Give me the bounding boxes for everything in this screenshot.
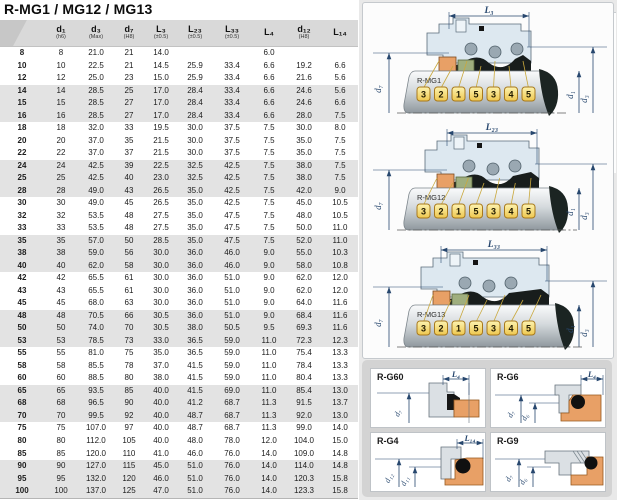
- part-number-plate: 2: [435, 87, 448, 101]
- part-number-plate: 5: [522, 204, 535, 218]
- svg-text:d₇: d₇: [373, 202, 383, 210]
- table-row: 161628.52717.028.433.46.628.07.5: [0, 110, 358, 123]
- svg-text:1: 1: [456, 90, 461, 100]
- detail-diagram-label: R-G60: [377, 372, 404, 382]
- table-header: d₁(h6) d₃(Max) d₇(H8) L₃(±0.5) L₂₃(±0.5)…: [0, 20, 358, 47]
- svg-text:2: 2: [438, 90, 443, 100]
- spring: [489, 46, 501, 58]
- column-header: d₃(Max): [78, 25, 114, 41]
- table-row: 101022.52114.525.933.46.619.26.6: [0, 60, 358, 73]
- svg-text:d₇: d₇: [373, 85, 383, 93]
- seat-ring: [456, 177, 472, 188]
- part-number-plate: 5: [522, 321, 535, 335]
- table-row: 606088.58038.041.559.011.080.413.3: [0, 372, 358, 385]
- svg-text:4: 4: [508, 90, 513, 100]
- column-header: L₂₃(±0.5): [178, 25, 212, 41]
- part-number-plate: 5: [470, 321, 483, 335]
- part-number-plate: 5: [522, 87, 535, 101]
- detail-diagram-label: R-G4: [377, 436, 399, 446]
- table-row: 535378.57333.036.559.011.072.312.3: [0, 335, 358, 348]
- detail-diagram-r-g9: R-G9 d₇ d₆: [490, 432, 606, 492]
- table-row: 8821.02114.06.0: [0, 47, 358, 60]
- part-number-plate: 3: [487, 204, 500, 218]
- part-number-plate: 1: [452, 321, 465, 335]
- table-body: 8821.02114.06.0101022.52114.525.933.46.6…: [0, 47, 358, 499]
- svg-text:2: 2: [438, 324, 443, 334]
- detail-diagram-label: R-G9: [497, 436, 519, 446]
- svg-text:d₇: d₇: [373, 319, 383, 327]
- svg-text:4: 4: [508, 324, 513, 334]
- table-row: 505074.07030.538.050.59.569.311.6: [0, 322, 358, 335]
- table-row: 404062.05830.036.046.09.058.010.8: [0, 260, 358, 273]
- length-dim-label: L₄: [451, 369, 460, 379]
- elastomer: [454, 400, 479, 417]
- svg-text:5: 5: [526, 90, 531, 100]
- svg-text:3: 3: [491, 324, 496, 334]
- page-title: R-MG1 / MG12 / MG13: [4, 1, 153, 17]
- svg-text:2: 2: [438, 207, 443, 217]
- spring: [463, 160, 475, 172]
- column-header: d₁₂(H8): [286, 25, 322, 41]
- diameter-dim-label: d₇: [505, 409, 516, 419]
- table-row: 707099.59240.048.768.711.392.013.0: [0, 410, 358, 423]
- table-row: 454568.06330.036.051.09.064.011.6: [0, 297, 358, 310]
- spring: [509, 160, 521, 172]
- table-row: 141428.52517.028.433.46.624.65.6: [0, 85, 358, 98]
- diameter-dim-label: d₇: [503, 473, 514, 483]
- column-header: L₃(±0.5): [144, 25, 178, 41]
- table-row: 656593.58540.041.569.011.085.413.0: [0, 385, 358, 398]
- diagram-label: R-MG13: [417, 310, 445, 319]
- diagram-label: R-MG12: [417, 193, 445, 202]
- column-header: [0, 20, 44, 46]
- detail-diagram-r-g60: R-G60 d₇ L₄: [370, 368, 486, 428]
- seal-diagram-r-mg13: R-MG13 3 2 1 5 3 4 5 L₃₃ d₇ d₁ d₃: [363, 237, 611, 354]
- svg-text:5: 5: [473, 207, 478, 217]
- part-number-plate: 4: [505, 204, 518, 218]
- svg-text:5: 5: [473, 90, 478, 100]
- svg-text:4: 4: [508, 207, 513, 217]
- table-row: 100100137.012547.051.076.014.0123.315.8: [0, 485, 358, 498]
- diameter-dim-label: d₁₂: [383, 472, 395, 485]
- diagram-label: R-MG1: [417, 76, 441, 85]
- column-header: L₃₃(±0.5): [212, 25, 252, 41]
- spring: [459, 277, 471, 289]
- part-number-plate: 2: [435, 321, 448, 335]
- table-row: 8585120.011041.046.076.014.0109.014.8: [0, 448, 358, 461]
- table-row: 555581.07535.036.559.011.075.413.3: [0, 347, 358, 360]
- seal-diagram-r-mg1: R-MG1 3 2 1 5 3 4 5 L₃ d₇ d₁ d₃: [363, 3, 611, 120]
- dimension-table: d₁(h6) d₃(Max) d₇(H8) L₃(±0.5) L₂₃(±0.5)…: [0, 20, 358, 499]
- diameter-dim-label: d₇: [392, 408, 403, 418]
- svg-text:3: 3: [491, 90, 496, 100]
- o-ring: [585, 457, 598, 470]
- table-row: 7575107.09740.048.768.711.399.014.0: [0, 422, 358, 435]
- svg-text:d₁: d₁: [565, 325, 575, 333]
- detail-diagram-label: R-G6: [497, 372, 519, 382]
- detail-diagram-r-g4: R-G4 d₁₂ d₁₁ L₁₄: [370, 432, 486, 492]
- seal-housing: [425, 135, 539, 180]
- seat: [545, 451, 589, 475]
- seal-housing: [427, 18, 531, 63]
- svg-text:3: 3: [421, 207, 426, 217]
- detail-diagram-r-g6: R-G6 d₇ d₆ L₄: [490, 368, 606, 428]
- o-ring: [571, 395, 585, 409]
- table-row: 303049.04526.535.042.57.545.010.5: [0, 197, 358, 210]
- table-row: 585885.57837.041.559.011.078.413.3: [0, 360, 358, 373]
- spring: [465, 43, 477, 55]
- table-row: 9595132.012046.051.076.014.0120.315.8: [0, 473, 358, 486]
- seal-face-ring: [439, 57, 456, 71]
- part-number-plate: 3: [417, 204, 430, 218]
- part-number-plate: 5: [470, 87, 483, 101]
- spring: [505, 277, 517, 289]
- table-row: 353557.05028.535.047.57.552.011.0: [0, 235, 358, 248]
- part-number-plate: 3: [417, 87, 430, 101]
- svg-text:d₃: d₃: [579, 212, 589, 220]
- spring: [487, 163, 499, 175]
- part-number-plate: 4: [505, 321, 518, 335]
- column-header: L₄: [252, 28, 286, 38]
- part-number-plate: 5: [470, 204, 483, 218]
- length-dim-label: L₄: [587, 369, 596, 379]
- svg-text:5: 5: [473, 324, 478, 334]
- part-number-plate: 3: [417, 321, 430, 335]
- svg-text:3: 3: [491, 207, 496, 217]
- table-row: 323253.54827.535.047.57.548.010.5: [0, 210, 358, 223]
- part-number-plate: 4: [505, 87, 518, 101]
- svg-text:3: 3: [421, 90, 426, 100]
- diameter-dim-label: d₁₁: [399, 475, 411, 488]
- part-number-plate: 1: [452, 87, 465, 101]
- table-row: 9090127.011545.051.076.014.0114.014.8: [0, 460, 358, 473]
- table-row: 222237.03721.530.037.57.535.07.5: [0, 147, 358, 160]
- column-header: d₁(h6): [44, 25, 78, 41]
- table-row: 121225.02315.025.933.46.621.65.6: [0, 72, 358, 85]
- svg-text:5: 5: [526, 324, 531, 334]
- column-header: L₁₄: [322, 28, 358, 38]
- table-row: 181832.03319.530.037.57.530.08.0: [0, 122, 358, 135]
- svg-text:d₁: d₁: [565, 208, 575, 216]
- svg-text:L₃₃: L₃₃: [487, 240, 500, 250]
- table-row: 434365.56130.036.051.09.062.012.0: [0, 285, 358, 298]
- spring: [483, 280, 495, 292]
- table-row: 484870.56630.536.051.09.068.411.6: [0, 310, 358, 323]
- seal-face-ring: [433, 291, 450, 305]
- table-row: 333353.54827.535.047.57.550.011.0: [0, 222, 358, 235]
- table-row: 202037.03521.530.037.57.535.07.5: [0, 135, 358, 148]
- svg-text:d₃: d₃: [579, 95, 589, 103]
- svg-text:d₃: d₃: [579, 329, 589, 337]
- diagram-column: R-MG1 3 2 1 5 3 4 5 L₃ d₇ d₁ d₃: [359, 0, 617, 500]
- part-number-plate: 2: [435, 204, 448, 218]
- table-row: 242442.53922.532.542.57.538.07.5: [0, 160, 358, 173]
- table-row: 383859.05630.036.046.09.055.010.3: [0, 247, 358, 260]
- svg-text:3: 3: [421, 324, 426, 334]
- svg-text:L₃: L₃: [483, 6, 493, 16]
- length-dim-label: L₁₄: [463, 433, 475, 443]
- table-row: 252542.54023.032.542.57.538.07.5: [0, 172, 358, 185]
- part-number-plate: 3: [487, 321, 500, 335]
- svg-text:L₂₃: L₂₃: [485, 123, 498, 133]
- seal-diagram-r-mg12: R-MG12 3 2 1 5 3 4 5 L₂₃ d₇ d₁ d₃: [363, 120, 611, 237]
- column-header: d₇(H8): [114, 25, 144, 41]
- svg-text:1: 1: [456, 324, 461, 334]
- detail-diagrams-panel: R-G60 d₇ L₄ R-G6 d₇ d₆ L₄ R-G4 d₁₂ d₁₁ L…: [362, 360, 612, 497]
- table-row: 151528.52717.028.433.46.624.66.6: [0, 97, 358, 110]
- table-row: 8080112.010540.048.078.012.0104.015.0: [0, 435, 358, 448]
- svg-text:d₁: d₁: [565, 91, 575, 99]
- part-number-plate: 1: [452, 204, 465, 218]
- svg-text:5: 5: [526, 207, 531, 217]
- o-ring: [456, 459, 471, 474]
- seal-diagrams-panel: R-MG1 3 2 1 5 3 4 5 L₃ d₇ d₁ d₃: [362, 2, 614, 359]
- spring: [511, 43, 523, 55]
- table-row: 282849.04326.535.042.57.542.09.0: [0, 185, 358, 198]
- part-number-plate: 3: [487, 87, 500, 101]
- table-row: 424265.56130.036.051.09.062.012.0: [0, 272, 358, 285]
- svg-text:1: 1: [456, 207, 461, 217]
- table-row: 686896.59040.041.268.711.391.513.7: [0, 397, 358, 410]
